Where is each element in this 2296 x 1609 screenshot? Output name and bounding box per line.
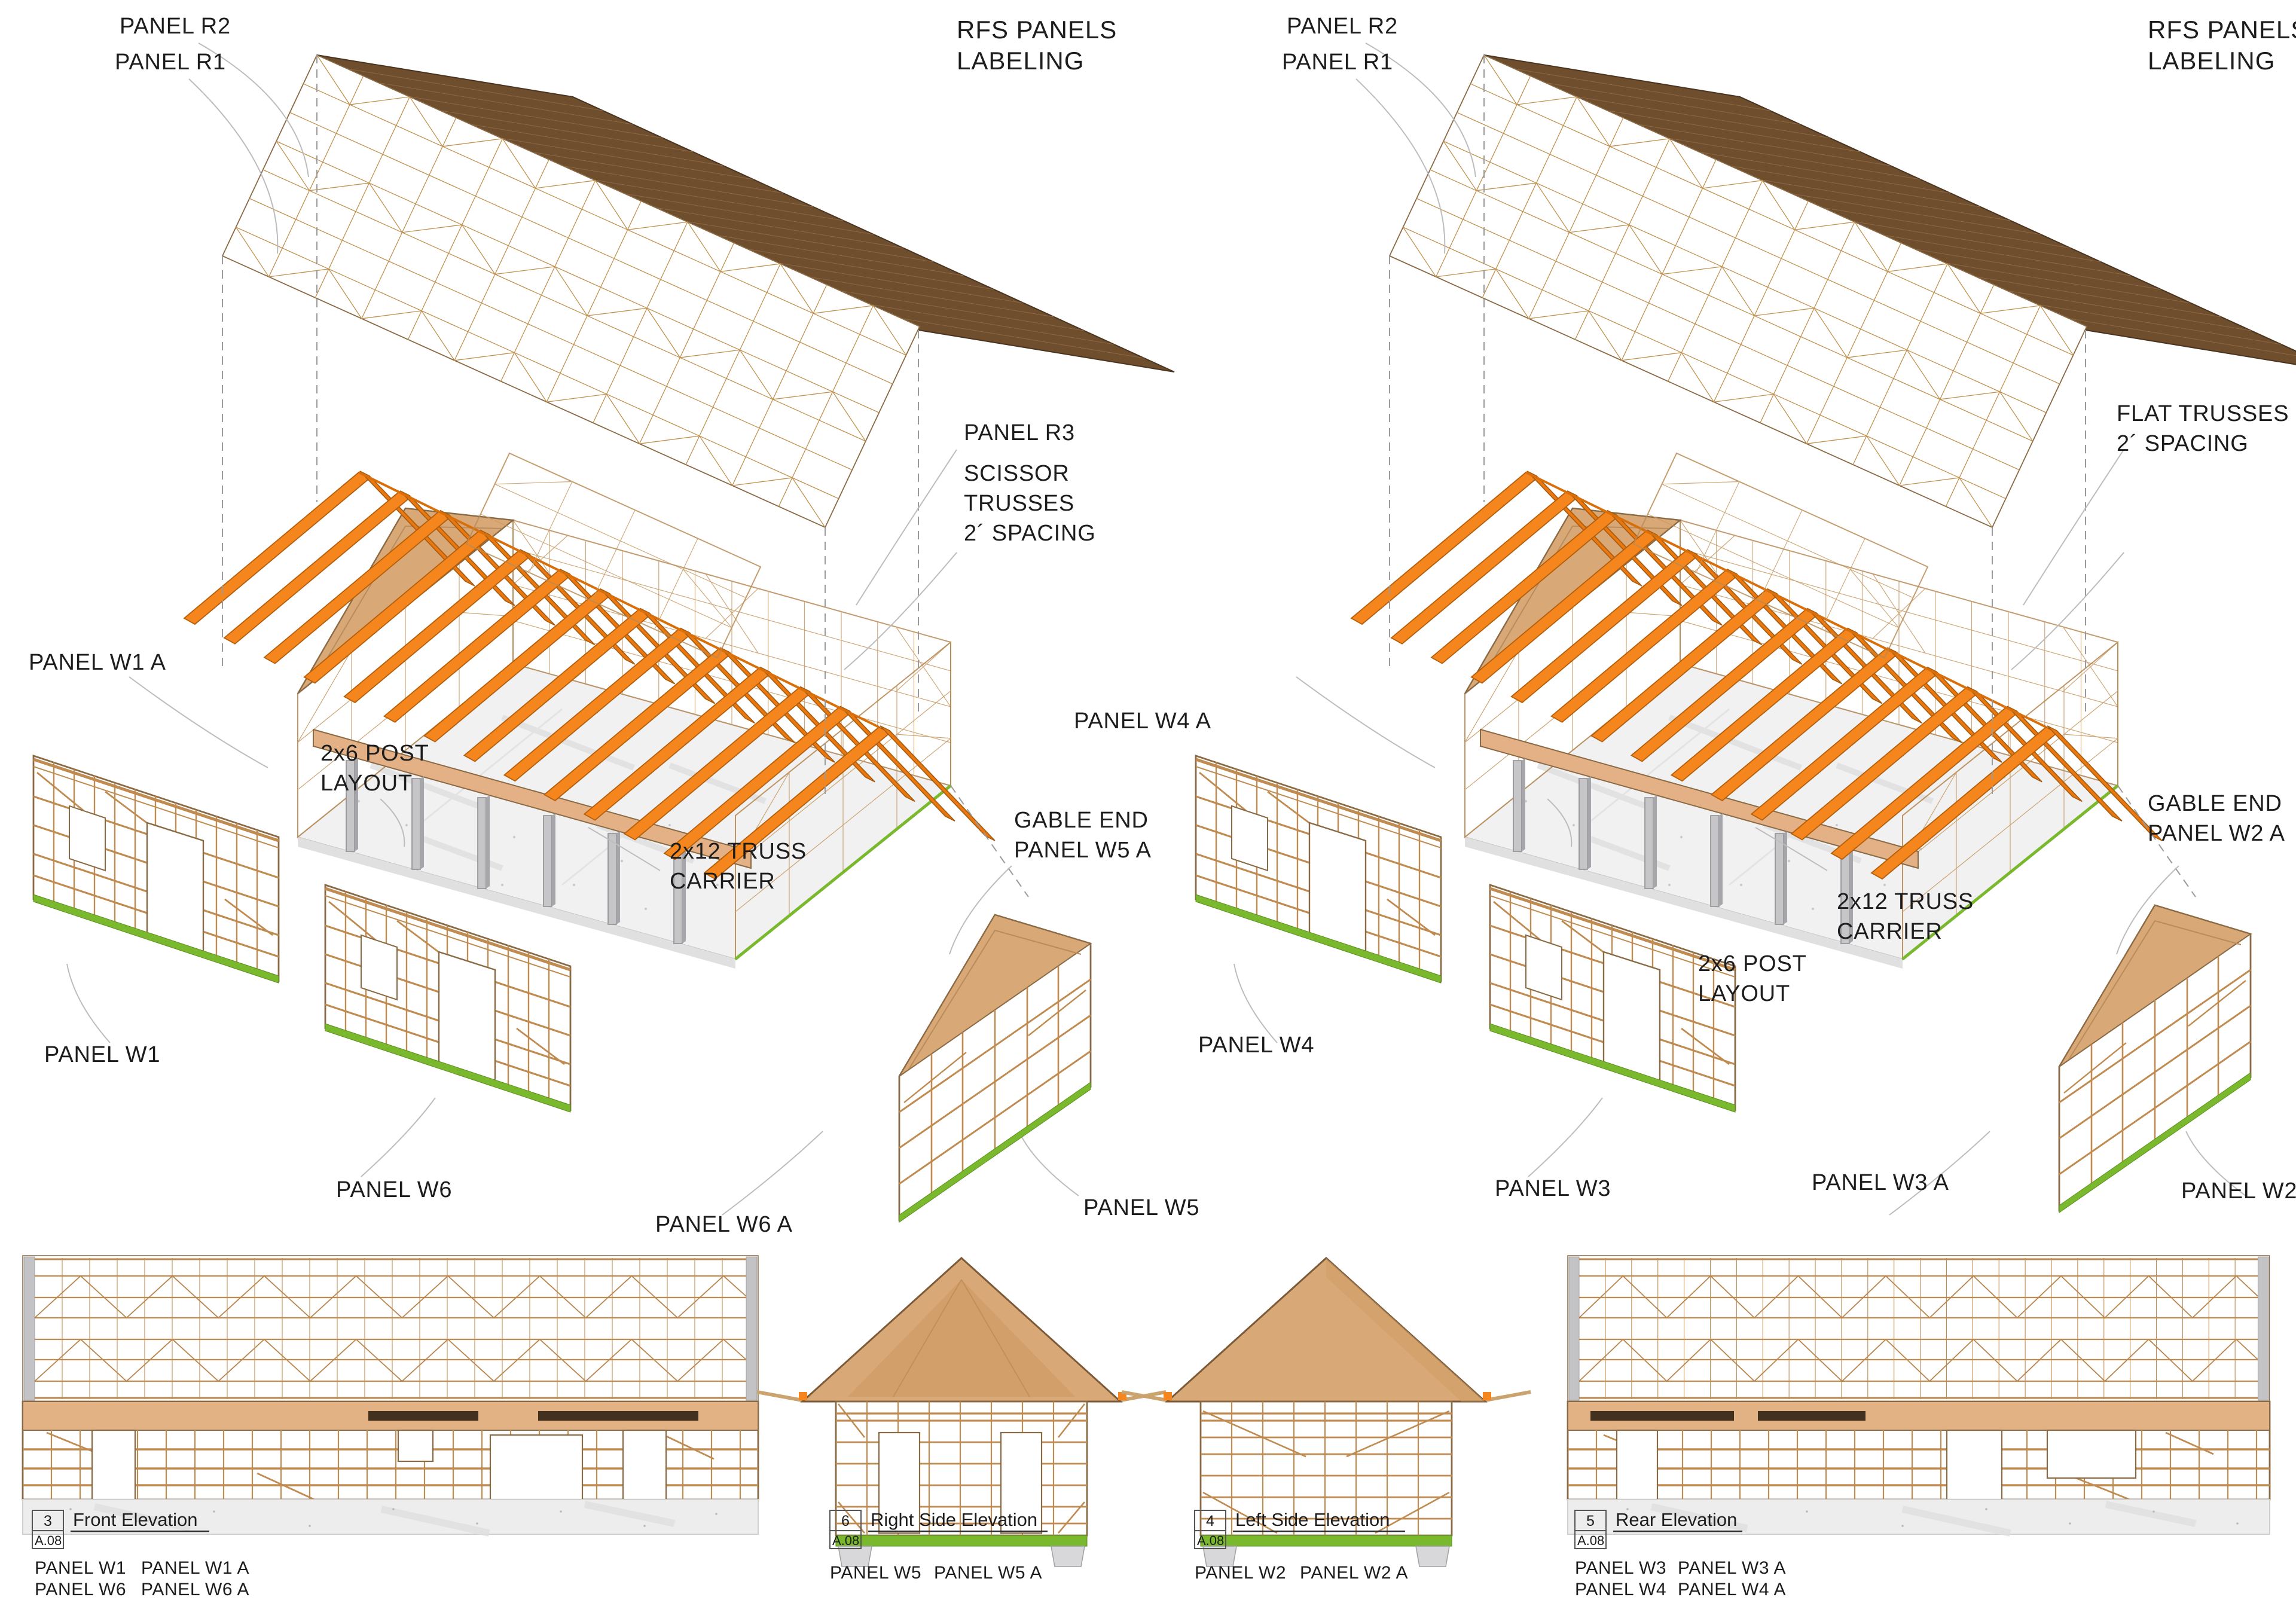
sheet-heading-line2: LABELING bbox=[2148, 47, 2275, 75]
front-elevation-number: 3 bbox=[44, 1513, 52, 1529]
roof-panel-drawing bbox=[1390, 55, 2296, 658]
label-panel-w6a: PANEL W6 A bbox=[655, 1212, 793, 1237]
right-exploded-view: PANEL R2 PANEL R1 RFS PANELS LABELING FL… bbox=[1074, 14, 2296, 1215]
panel-w2-drawing bbox=[2059, 905, 2251, 1213]
front-elevation-title: Front Elevation bbox=[73, 1509, 198, 1530]
label-post-note-1: 2x6 POST bbox=[1698, 951, 1807, 976]
label-post-note-2: LAYOUT bbox=[320, 771, 413, 796]
label-post-note-2: LAYOUT bbox=[1698, 981, 1790, 1006]
sheet-heading-line1: RFS PANELS bbox=[957, 16, 1117, 44]
rear-truss-band bbox=[1568, 1256, 2269, 1402]
label-post-note-1: 2x6 POST bbox=[320, 741, 429, 766]
front-elevation-sheet: A.08 bbox=[35, 1533, 62, 1548]
caption-panel-w2: PANEL W2 bbox=[1195, 1563, 1286, 1583]
label-panel-w4a: PANEL W4 A bbox=[1074, 709, 1211, 734]
roof-panel-drawing bbox=[222, 55, 1174, 658]
front-truss-band bbox=[23, 1256, 758, 1402]
left-side-elevation-sheet: A.08 bbox=[1197, 1533, 1224, 1548]
label-panel-w2: PANEL W2 bbox=[2181, 1178, 2296, 1204]
caption-panel-w3a: PANEL W3 A bbox=[1678, 1558, 1786, 1578]
rear-elevation-sheet: A.08 bbox=[1577, 1533, 1604, 1548]
panel-w5-drawing bbox=[899, 915, 1091, 1222]
label-panel-w1a: PANEL W1 A bbox=[29, 650, 166, 675]
label-panel-r1: PANEL R1 bbox=[115, 50, 226, 75]
rear-elevation-number: 5 bbox=[1586, 1513, 1595, 1529]
right-side-elevation-sheet: A.08 bbox=[832, 1533, 859, 1548]
label-panel-r2: PANEL R2 bbox=[120, 14, 231, 39]
front-elevation-captions: PANEL W1 PANEL W6 PANEL W1 A PANEL W6 A bbox=[35, 1558, 249, 1599]
panel-w4-drawing bbox=[1196, 756, 1441, 983]
caption-panel-w3: PANEL W3 bbox=[1575, 1558, 1666, 1578]
left-exploded-view: PANEL R2 PANEL R1 RFS PANELS LABELING PA… bbox=[29, 14, 1199, 1237]
caption-panel-w4: PANEL W4 bbox=[1575, 1580, 1666, 1599]
rear-elevation-title: Rear Elevation bbox=[1616, 1509, 1737, 1530]
rear-elevation bbox=[1568, 1256, 2270, 1534]
left-side-elevation-title: Left Side Elevation bbox=[1235, 1509, 1390, 1530]
caption-panel-w5a: PANEL W5 A bbox=[934, 1563, 1042, 1583]
label-gable-note-2: PANEL W2 A bbox=[2148, 821, 2285, 846]
right-side-elevation-captions: PANEL W5 PANEL W5 A bbox=[830, 1563, 1042, 1583]
label-panel-r2: PANEL R2 bbox=[1287, 14, 1398, 39]
caption-panel-w1a: PANEL W1 A bbox=[141, 1558, 249, 1578]
panel-w6-drawing bbox=[325, 885, 570, 1112]
label-panel-w1: PANEL W1 bbox=[44, 1042, 160, 1067]
right-side-elevation-title: Right Side Elevation bbox=[871, 1509, 1037, 1530]
label-carrier-note-1: 2x12 TRUSS bbox=[1837, 889, 1974, 914]
label-truss-note-2: 2´ SPACING bbox=[2117, 431, 2249, 456]
label-truss-note-2: TRUSSES bbox=[964, 491, 1074, 516]
label-carrier-note-2: CARRIER bbox=[670, 869, 775, 894]
caption-panel-w4a: PANEL W4 A bbox=[1678, 1580, 1786, 1599]
label-panel-w3: PANEL W3 bbox=[1495, 1176, 1611, 1201]
label-carrier-note-1: 2x12 TRUSS bbox=[670, 839, 807, 864]
caption-panel-w6: PANEL W6 bbox=[35, 1580, 126, 1599]
label-carrier-note-2: CARRIER bbox=[1837, 919, 1943, 944]
label-truss-note-1: FLAT TRUSSES bbox=[2117, 401, 2289, 426]
label-panel-w6: PANEL W6 bbox=[336, 1177, 452, 1202]
caption-panel-w6a: PANEL W6 A bbox=[141, 1580, 249, 1599]
left-side-elevation-captions: PANEL W2 PANEL W2 A bbox=[1195, 1563, 1408, 1583]
front-elevation bbox=[23, 1256, 758, 1534]
rear-elevation-captions: PANEL W3 PANEL W4 PANEL W3 A PANEL W4 A bbox=[1575, 1558, 1786, 1599]
label-panel-r3: PANEL R3 bbox=[964, 420, 1075, 445]
drawing-sheet: PANEL R2 PANEL R1 RFS PANELS LABELING PA… bbox=[0, 0, 2296, 1609]
caption-panel-w5: PANEL W5 bbox=[830, 1563, 921, 1583]
left-side-elevation-number: 4 bbox=[1206, 1513, 1214, 1529]
caption-panel-w1: PANEL W1 bbox=[35, 1558, 126, 1578]
label-panel-w5: PANEL W5 bbox=[1083, 1195, 1199, 1220]
caption-panel-w2a: PANEL W2 A bbox=[1300, 1563, 1408, 1583]
right-side-elevation-number: 6 bbox=[841, 1513, 850, 1529]
panel-w1-drawing bbox=[33, 756, 279, 983]
label-panel-w3a: PANEL W3 A bbox=[1812, 1170, 1949, 1195]
sheet-heading-line2: LABELING bbox=[957, 47, 1084, 75]
sheet-heading-line1: RFS PANELS bbox=[2148, 16, 2296, 44]
label-gable-note-1: GABLE END bbox=[2148, 791, 2282, 816]
label-truss-note-3: 2´ SPACING bbox=[964, 521, 1096, 546]
label-panel-w4: PANEL W4 bbox=[1198, 1033, 1314, 1058]
label-truss-note-1: SCISSOR bbox=[964, 461, 1070, 486]
label-panel-r1: PANEL R1 bbox=[1282, 50, 1393, 75]
label-gable-note-2: PANEL W5 A bbox=[1014, 838, 1152, 863]
label-gable-note-1: GABLE END bbox=[1014, 808, 1149, 833]
